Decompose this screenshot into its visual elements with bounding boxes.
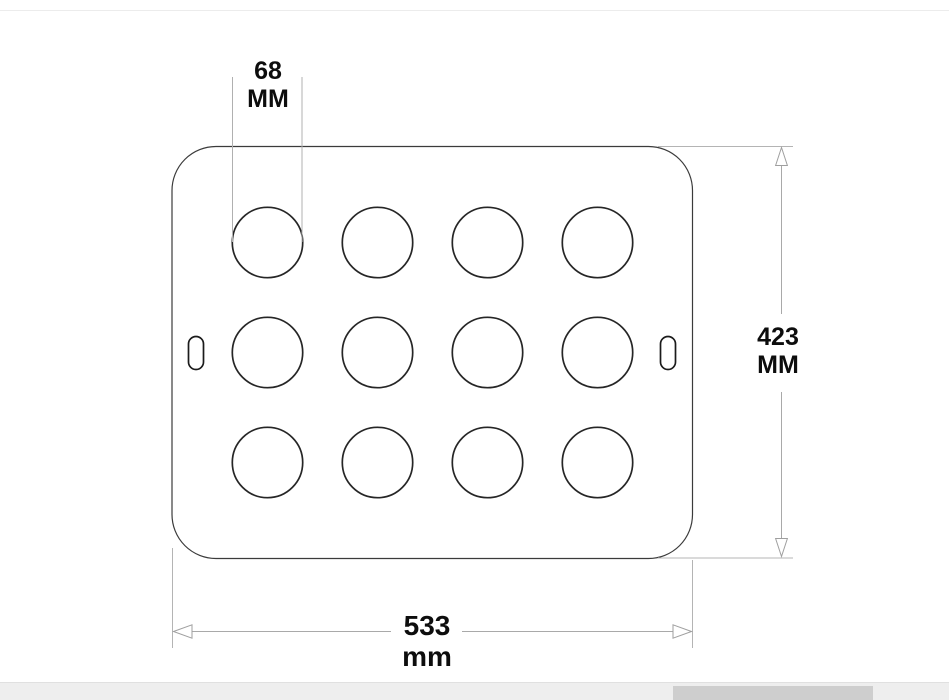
hole-circle bbox=[562, 427, 632, 497]
horizontal-scrollbar[interactable] bbox=[0, 682, 949, 700]
plate-width-unit: mm bbox=[367, 641, 487, 672]
hole-circle bbox=[452, 317, 522, 387]
plate-width-value: 533 bbox=[367, 610, 487, 641]
plate-height-value: 423 bbox=[718, 323, 838, 351]
hole-diameter-unit: MM bbox=[208, 85, 328, 113]
hole-circle bbox=[342, 427, 412, 497]
right-slot-cutout bbox=[661, 337, 676, 370]
arrowhead-down bbox=[776, 539, 788, 557]
plate-width-label: 533 mm bbox=[367, 610, 487, 672]
hole-diameter-value: 68 bbox=[208, 57, 328, 85]
drawing-viewport: 68 MM 423 MM 533 mm bbox=[0, 0, 949, 700]
plate-outline bbox=[172, 147, 693, 559]
plate-height-label: 423 MM bbox=[718, 323, 838, 379]
hole-circle bbox=[232, 317, 302, 387]
hole-circle bbox=[232, 427, 302, 497]
hole-circle bbox=[562, 207, 632, 277]
scrollbar-thumb[interactable] bbox=[673, 686, 873, 700]
hole-diameter-label: 68 MM bbox=[208, 57, 328, 113]
left-slot-cutout bbox=[189, 337, 204, 370]
hole-circle bbox=[562, 317, 632, 387]
arrowhead-up bbox=[776, 148, 788, 166]
hole-circle bbox=[342, 317, 412, 387]
hole-circle bbox=[342, 207, 412, 277]
hole-circle bbox=[232, 207, 302, 277]
arrowhead-right bbox=[673, 625, 692, 638]
hole-circle bbox=[452, 207, 522, 277]
arrowhead-left bbox=[174, 625, 193, 638]
hole-grid bbox=[232, 207, 632, 497]
hole-circle bbox=[452, 427, 522, 497]
plate-height-unit: MM bbox=[718, 351, 838, 379]
